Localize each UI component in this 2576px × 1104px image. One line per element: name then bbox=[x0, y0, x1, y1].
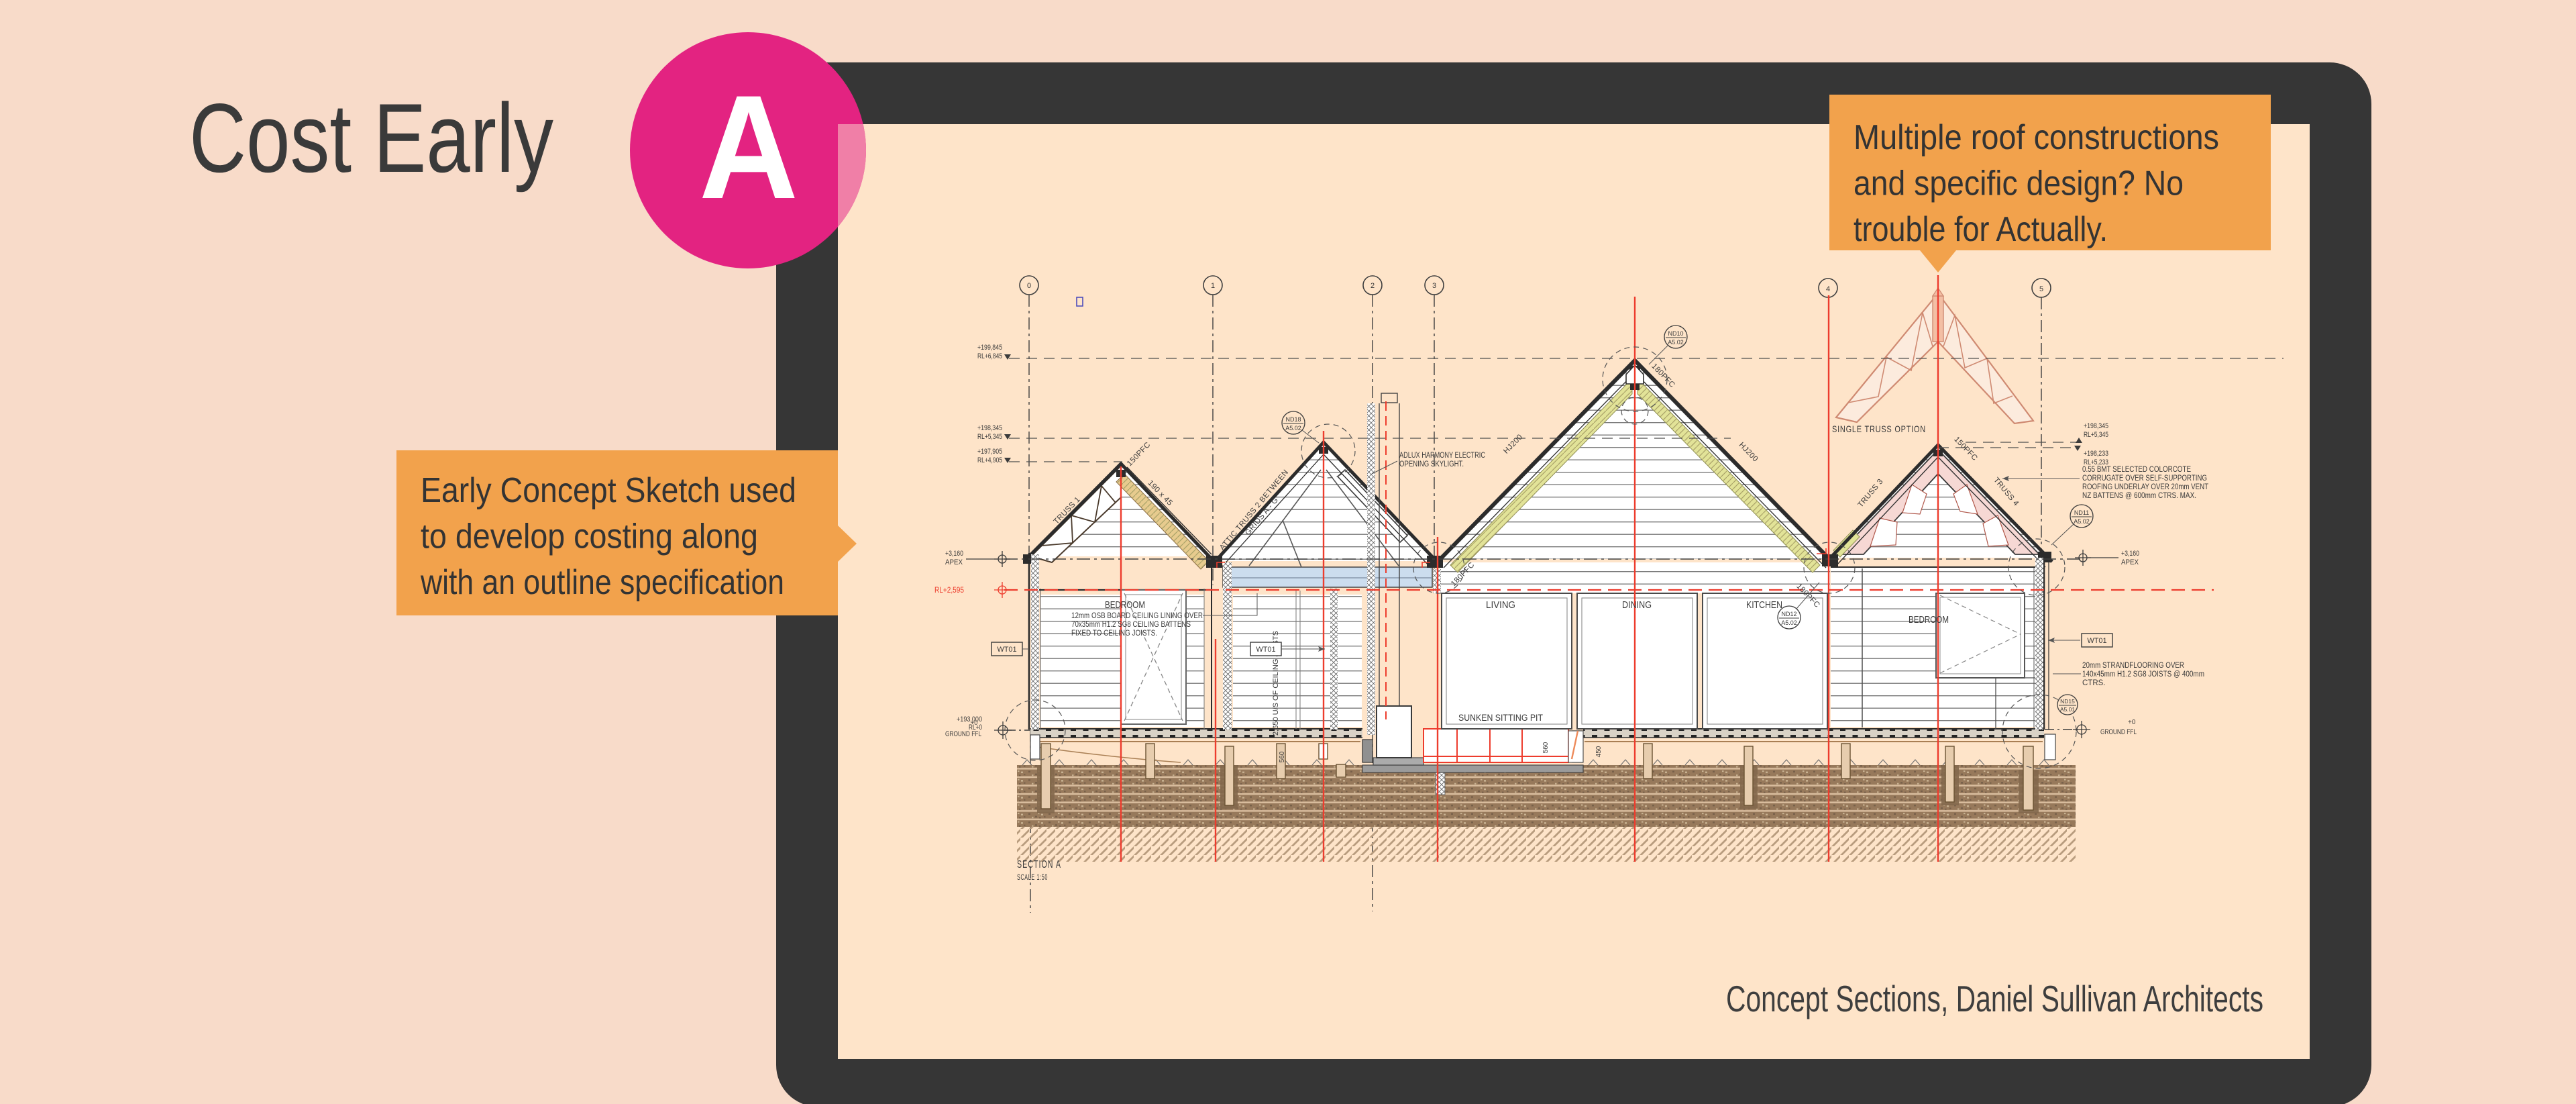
svg-text:70x35mm H1.2 SG8 CEILING BATTE: 70x35mm H1.2 SG8 CEILING BATTENS bbox=[1071, 621, 1191, 629]
svg-text:Early Concept Sketch used: Early Concept Sketch used bbox=[421, 471, 796, 510]
svg-text:0.55 BMT SELECTED COLORCOTE: 0.55 BMT SELECTED COLORCOTE bbox=[2082, 466, 2191, 474]
svg-text:+197,905: +197,905 bbox=[977, 448, 1002, 456]
svg-text:+198,233: +198,233 bbox=[2084, 450, 2108, 458]
svg-text:A5.02: A5.02 bbox=[2074, 518, 2090, 525]
svg-text:0: 0 bbox=[1027, 282, 1031, 290]
svg-text:FIXED TO CEILING JOISTS.: FIXED TO CEILING JOISTS. bbox=[1071, 630, 1157, 638]
svg-text:+3,160: +3,160 bbox=[945, 550, 963, 558]
svg-text:560: 560 bbox=[1542, 742, 1550, 753]
svg-text:ND18: ND18 bbox=[1285, 416, 1301, 423]
svg-text:CTRS.: CTRS. bbox=[2082, 679, 2106, 687]
svg-text:4: 4 bbox=[1826, 285, 1830, 293]
svg-text:A5.02: A5.02 bbox=[1668, 339, 1684, 346]
svg-text:NZ BATTENS @ 600mm CTRS. MAX.: NZ BATTENS @ 600mm CTRS. MAX. bbox=[2082, 492, 2196, 500]
svg-text:RL+2,595: RL+2,595 bbox=[934, 585, 964, 595]
svg-text:12mm OSB BOARD CEILING LINING: 12mm OSB BOARD CEILING LINING OVER bbox=[1071, 612, 1203, 620]
svg-text:SECTION A: SECTION A bbox=[1017, 859, 1061, 870]
svg-text:Concept Sections, Daniel Sulli: Concept Sections, Daniel Sullivan Archit… bbox=[1726, 978, 2263, 1019]
svg-text:ROOFING UNDERLAY OVER 20mm VEN: ROOFING UNDERLAY OVER 20mm VENT bbox=[2082, 483, 2208, 491]
svg-text:WT01: WT01 bbox=[1256, 646, 1275, 654]
svg-text:+198,345: +198,345 bbox=[2084, 422, 2108, 430]
svg-text:RL+4,905: RL+4,905 bbox=[977, 456, 1002, 464]
svg-text:3: 3 bbox=[1432, 282, 1436, 290]
svg-text:DINING: DINING bbox=[1622, 599, 1652, 611]
svg-text:to develop costing along: to develop costing along bbox=[421, 517, 758, 556]
svg-text:trouble for Actually.: trouble for Actually. bbox=[1854, 210, 2108, 249]
svg-text:RL+5,345: RL+5,345 bbox=[977, 433, 1002, 441]
svg-text:+0: +0 bbox=[971, 719, 977, 726]
svg-text:+0: +0 bbox=[2128, 719, 2136, 726]
svg-text:560: 560 bbox=[1279, 751, 1286, 762]
svg-text:ND15: ND15 bbox=[2060, 698, 2075, 705]
svg-text:KITCHEN: KITCHEN bbox=[1746, 599, 1782, 611]
svg-text:A: A bbox=[699, 64, 798, 230]
svg-text:OPENING SKYLIGHT.: OPENING SKYLIGHT. bbox=[1399, 460, 1464, 468]
svg-text:WT01: WT01 bbox=[997, 646, 1016, 654]
svg-text:and specific design? No: and specific design? No bbox=[1854, 164, 2184, 203]
svg-text:20mm STRANDFLOORING OVER: 20mm STRANDFLOORING OVER bbox=[2082, 662, 2184, 670]
svg-text:+193,000: +193,000 bbox=[957, 715, 982, 723]
svg-text:APEX: APEX bbox=[2121, 558, 2139, 566]
svg-text:+199,845: +199,845 bbox=[977, 344, 1002, 352]
svg-text:RL+6,845: RL+6,845 bbox=[977, 352, 1002, 360]
svg-text:ND12: ND12 bbox=[1781, 611, 1796, 617]
svg-text:1: 1 bbox=[1211, 282, 1215, 290]
svg-text:WT01: WT01 bbox=[2087, 637, 2106, 645]
svg-text:5: 5 bbox=[2039, 285, 2043, 293]
svg-text:GROUND FFL: GROUND FFL bbox=[2100, 728, 2137, 736]
svg-text:BEDROOM: BEDROOM bbox=[1909, 614, 1949, 625]
svg-text:ND11: ND11 bbox=[2074, 509, 2089, 516]
svg-text:A5.01: A5.01 bbox=[2060, 706, 2075, 713]
svg-text:RL+5,345: RL+5,345 bbox=[2084, 431, 2108, 439]
svg-text:SCALE 1:50: SCALE 1:50 bbox=[1017, 874, 1048, 882]
svg-text:Cost Early: Cost Early bbox=[189, 83, 553, 193]
svg-text:ND10: ND10 bbox=[1668, 330, 1683, 337]
svg-text:ADLUX HARMONY ELECTRIC: ADLUX HARMONY ELECTRIC bbox=[1399, 452, 1485, 460]
svg-text:LIVING: LIVING bbox=[1486, 599, 1515, 611]
svg-text:with an outline specification: with an outline specification bbox=[420, 563, 784, 602]
svg-text:BEDROOM: BEDROOM bbox=[1105, 599, 1145, 611]
svg-text:SUNKEN SITTING PIT: SUNKEN SITTING PIT bbox=[1458, 713, 1543, 723]
svg-text:A5.02: A5.02 bbox=[1285, 425, 1301, 432]
svg-text:CORRUGATE OVER SELF-SUPPORTING: CORRUGATE OVER SELF-SUPPORTING bbox=[2082, 474, 2207, 483]
svg-text:SINGLE TRUSS OPTION: SINGLE TRUSS OPTION bbox=[1832, 423, 1926, 434]
svg-text:+198,345: +198,345 bbox=[977, 424, 1002, 432]
svg-text:140x45mm H1.2 SG8 JOISTS @ 400: 140x45mm H1.2 SG8 JOISTS @ 400mm bbox=[2082, 670, 2204, 679]
svg-text:+3,160: +3,160 bbox=[2121, 550, 2139, 558]
svg-text:A5.02: A5.02 bbox=[1781, 619, 1797, 626]
svg-text:Multiple roof constructions: Multiple roof constructions bbox=[1854, 118, 2219, 157]
svg-text:GROUND FFL: GROUND FFL bbox=[945, 730, 981, 738]
svg-text:450: 450 bbox=[1595, 746, 1603, 757]
svg-text:APEX: APEX bbox=[945, 558, 963, 566]
svg-text:2: 2 bbox=[1371, 282, 1375, 290]
